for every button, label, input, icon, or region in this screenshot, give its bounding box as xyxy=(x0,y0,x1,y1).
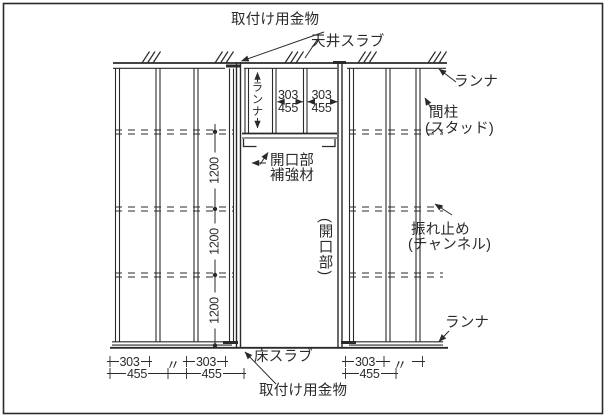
wall-studs xyxy=(116,69,421,342)
label-stud-line2: (スタッド) xyxy=(425,122,494,137)
label-mounting-hardware-top: 取付け用金物 xyxy=(231,13,319,28)
label-mounting-hardware-bottom: 取付け用金物 xyxy=(259,384,347,399)
floor-slab-lines xyxy=(110,342,448,348)
dim-top-pitch-1-alt: 455 xyxy=(276,102,300,115)
label-bracing-line1: 振れ止め xyxy=(411,223,470,238)
slab-hatch-marks xyxy=(142,52,447,64)
dim-top-pitch-2-primary: 303 xyxy=(310,89,334,102)
leader-lines xyxy=(242,32,457,384)
ceiling-slab-lines xyxy=(113,63,447,68)
ditto-mark-right: 〃 xyxy=(393,358,407,372)
dim-top-pitch-2-alt: 455 xyxy=(310,102,334,115)
label-opening-reinforcement-line2: 補強材 xyxy=(270,169,314,184)
label-runner-top-right: ランナ xyxy=(454,75,498,90)
opening-reinforcement-header xyxy=(242,134,337,147)
ditto-mark-left: 〃 xyxy=(166,358,180,372)
label-opening-reinforcement-line1: 開口部 xyxy=(270,154,314,169)
dim-bottom-left-2-alt: 455 xyxy=(201,368,223,381)
label-opening-vertical: (開口部) xyxy=(317,218,332,276)
dim-bracing-spacing-3: 1200 xyxy=(208,293,221,329)
dim-bracing-spacing-2: 1200 xyxy=(208,224,221,260)
dim-top-pitch-1-primary: 303 xyxy=(276,89,300,102)
label-floor-slab: 床スラブ xyxy=(254,350,313,365)
dim-bracing-spacing-1: 1200 xyxy=(208,153,221,189)
label-ceiling-slab: 天井スラブ xyxy=(311,35,385,50)
dim-bottom-right-1-alt: 455 xyxy=(359,368,381,381)
dim-bottom-left-1-alt: 455 xyxy=(126,368,148,381)
label-bracing-line2: (チャンネル) xyxy=(408,238,491,253)
label-runner-bottom-right: ランナ xyxy=(445,316,489,331)
label-runner-opening-vertical: ランナ xyxy=(250,81,262,117)
label-stud-line1: 間柱 xyxy=(429,106,458,121)
framing-diagram: 取付け用金物 天井スラブ ランナ 間柱 (スタッド) 開口部 補強材 振れ止め … xyxy=(0,0,607,418)
